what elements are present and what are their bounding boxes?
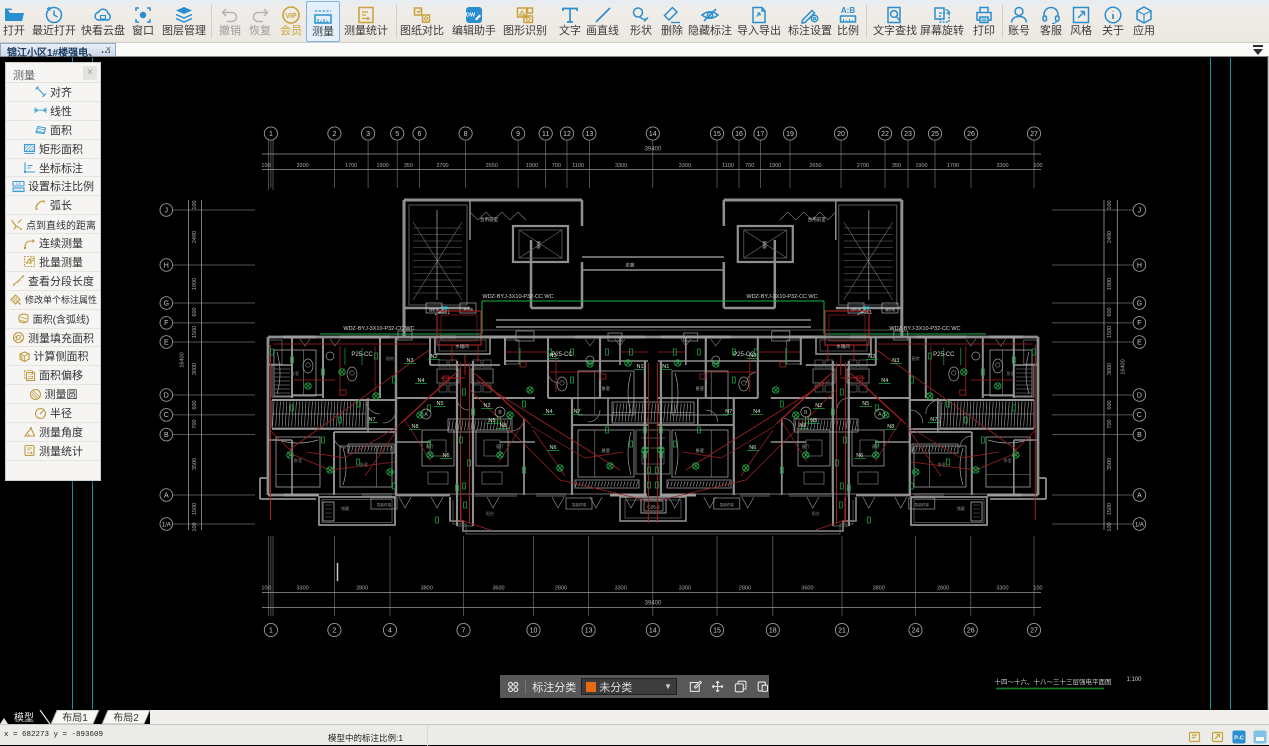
svg-text:1:100: 1:100: [1126, 677, 1142, 683]
svg-text:B: B: [498, 410, 502, 416]
svg-text:12: 12: [563, 131, 571, 138]
svg-text:B: B: [1137, 432, 1142, 439]
svg-text:N5: N5: [810, 418, 817, 424]
svg-text:N7: N7: [930, 417, 937, 423]
svg-text:J: J: [1138, 207, 1142, 214]
svg-text:700: 700: [552, 163, 561, 169]
svg-text:1500: 1500: [192, 326, 198, 338]
svg-text:16400: 16400: [1121, 359, 1127, 374]
svg-text:27: 27: [1030, 628, 1038, 635]
svg-text:3300: 3300: [679, 586, 691, 592]
svg-text:27: 27: [1030, 131, 1038, 138]
svg-text:厨房: 厨房: [912, 355, 920, 361]
svg-text:1700: 1700: [345, 163, 357, 169]
svg-text:N6: N6: [856, 453, 863, 459]
svg-text:N8: N8: [499, 423, 506, 429]
svg-text:F: F: [1137, 320, 1141, 327]
svg-text:智能终端: 智能终端: [572, 502, 586, 507]
svg-text:11: 11: [542, 131, 549, 138]
svg-text:2800: 2800: [555, 586, 567, 592]
svg-text:卧室: 卧室: [938, 461, 946, 467]
svg-text:储藏: 储藏: [341, 505, 349, 511]
svg-text:B: B: [804, 410, 808, 416]
svg-text:N2: N2: [430, 354, 437, 360]
svg-text:350: 350: [892, 163, 901, 169]
svg-text:10: 10: [530, 628, 538, 635]
svg-text:100: 100: [1033, 586, 1042, 592]
svg-text:1900: 1900: [192, 278, 198, 290]
svg-text:1900: 1900: [1107, 278, 1113, 290]
svg-text:26: 26: [967, 131, 975, 138]
svg-text:N3: N3: [892, 358, 899, 364]
svg-text:合用前室: 合用前室: [808, 216, 826, 223]
svg-text:8: 8: [464, 131, 468, 138]
svg-text:1500: 1500: [1107, 503, 1113, 515]
svg-text:N2: N2: [868, 354, 875, 360]
svg-text:9: 9: [516, 131, 520, 138]
svg-text:2800: 2800: [937, 586, 949, 592]
svg-text:N6: N6: [749, 445, 756, 451]
svg-text:P-C: P-C: [1234, 735, 1244, 741]
svg-text:卧室: 卧室: [602, 385, 610, 391]
svg-text:16: 16: [735, 131, 743, 138]
svg-text:600: 600: [1107, 400, 1113, 409]
svg-text:客厅: 客厅: [802, 443, 810, 449]
svg-text:15: 15: [713, 131, 721, 138]
svg-text:20: 20: [837, 131, 845, 138]
svg-text:N7: N7: [725, 409, 732, 415]
svg-text:3000: 3000: [192, 363, 198, 375]
svg-text:100: 100: [261, 586, 270, 592]
svg-text:N8: N8: [799, 423, 806, 429]
svg-text:25: 25: [931, 131, 939, 138]
svg-text:2650: 2650: [486, 163, 498, 169]
svg-text:水箱间: 水箱间: [455, 343, 469, 350]
svg-text:2700: 2700: [436, 163, 448, 169]
svg-text:3300: 3300: [996, 586, 1008, 592]
svg-text:18: 18: [769, 628, 777, 635]
svg-text:1500: 1500: [1107, 326, 1113, 338]
svg-text:N2: N2: [815, 403, 822, 409]
svg-text:100: 100: [192, 200, 198, 209]
svg-text:100: 100: [1033, 163, 1042, 169]
svg-text:智能终端: 智能终端: [915, 502, 929, 507]
svg-text:VIP: VIP: [285, 13, 297, 20]
svg-text:1900: 1900: [769, 163, 781, 169]
svg-text:3500: 3500: [192, 458, 198, 470]
svg-text:消防电: 消防电: [885, 307, 896, 312]
svg-text:3300: 3300: [296, 163, 308, 169]
svg-text:14: 14: [649, 628, 657, 635]
svg-text:1/A: 1/A: [1135, 522, 1144, 528]
svg-text:客厅: 客厅: [872, 443, 880, 449]
svg-text:1900: 1900: [376, 163, 388, 169]
svg-text:600: 600: [1107, 307, 1113, 316]
svg-text:6: 6: [418, 131, 422, 138]
svg-text:600: 600: [192, 307, 198, 316]
svg-text:2: 2: [332, 131, 336, 138]
svg-text:客厅: 客厅: [496, 443, 504, 449]
svg-text:3300: 3300: [615, 586, 627, 592]
svg-text:21: 21: [838, 628, 846, 635]
svg-text:智能终端: 智能终端: [720, 502, 734, 507]
svg-text:3300: 3300: [615, 163, 627, 169]
svg-text:100: 100: [1107, 522, 1113, 531]
svg-text:1900: 1900: [526, 163, 538, 169]
svg-text:P25-CC: P25-CC: [733, 352, 755, 358]
svg-text:合用前室: 合用前室: [480, 216, 498, 223]
svg-text:N4: N4: [417, 378, 424, 384]
svg-text:十四～十六、十八～三十三层强电平面图: 十四～十六、十八～三十三层强电平面图: [995, 677, 1112, 686]
svg-text:WDZ-BYJ-3X10-P32-CC WC: WDZ-BYJ-3X10-P32-CC WC: [746, 294, 817, 300]
svg-text:N7: N7: [573, 409, 580, 415]
svg-text:卧室: 卧室: [1004, 457, 1012, 463]
svg-text:厨房: 厨房: [386, 355, 394, 361]
svg-text:100: 100: [1107, 200, 1113, 209]
svg-text:A: A: [424, 412, 428, 418]
svg-text:A:B: A:B: [841, 6, 855, 15]
svg-text:14: 14: [649, 131, 657, 138]
svg-text:G: G: [164, 300, 169, 307]
svg-text:B: B: [164, 432, 169, 439]
svg-text:3300: 3300: [679, 163, 691, 169]
svg-text:600: 600: [192, 400, 198, 409]
svg-text:2490: 2490: [1107, 231, 1113, 243]
svg-text:A: A: [1137, 492, 1142, 499]
svg-text:电梯: 电梯: [535, 241, 541, 249]
svg-text:N8: N8: [411, 424, 418, 430]
svg-text:3300: 3300: [296, 586, 308, 592]
svg-text:700: 700: [1107, 419, 1113, 428]
svg-text:2490: 2490: [192, 231, 198, 243]
svg-text:布局1: 布局1: [62, 712, 88, 724]
svg-text:H: H: [164, 262, 169, 269]
svg-text:N8: N8: [887, 424, 894, 430]
svg-text:100: 100: [192, 522, 198, 531]
svg-text:700: 700: [745, 163, 754, 169]
svg-text:3500: 3500: [1107, 458, 1113, 470]
svg-text:E: E: [164, 339, 169, 346]
svg-text:卧室: 卧室: [1007, 370, 1015, 376]
svg-text:阳台: 阳台: [486, 510, 494, 516]
svg-text:16400: 16400: [180, 352, 186, 367]
svg-text:A:B: A:B: [16, 182, 22, 186]
svg-text:1: 1: [269, 628, 273, 635]
svg-text:23: 23: [904, 131, 912, 138]
svg-text:1700: 1700: [947, 163, 959, 169]
svg-text:5: 5: [395, 131, 399, 138]
svg-text:3600: 3600: [492, 586, 504, 592]
svg-text:G: G: [1137, 300, 1142, 307]
svg-text:N6: N6: [442, 453, 449, 459]
svg-text:1100: 1100: [722, 163, 734, 169]
svg-text:3600: 3600: [801, 586, 813, 592]
svg-text:26: 26: [967, 628, 975, 635]
svg-text:3800: 3800: [873, 586, 885, 592]
svg-text:D: D: [1137, 392, 1142, 399]
svg-text:卧室: 卧室: [696, 385, 704, 391]
svg-text:350: 350: [404, 163, 413, 169]
svg-text:17: 17: [757, 131, 765, 138]
svg-text:15: 15: [713, 628, 721, 635]
svg-text:客厅: 客厅: [426, 443, 434, 449]
svg-text:N4: N4: [753, 409, 760, 415]
svg-text:2650: 2650: [809, 163, 821, 169]
svg-text:13: 13: [586, 131, 594, 138]
svg-text:N5: N5: [436, 401, 443, 407]
svg-text:3300: 3300: [996, 163, 1008, 169]
svg-text:39400: 39400: [645, 601, 662, 607]
svg-text:2800: 2800: [356, 586, 368, 592]
svg-text:1100: 1100: [572, 163, 584, 169]
svg-text:C: C: [1137, 412, 1142, 419]
svg-text:卧室: 卧室: [696, 447, 704, 453]
svg-text:DW: DW: [466, 13, 476, 19]
svg-text:F: F: [164, 320, 168, 327]
svg-text:走廊: 走廊: [626, 262, 635, 269]
svg-text:N1: N1: [662, 364, 669, 370]
svg-text:N1: N1: [636, 364, 643, 370]
svg-text:储藏: 储藏: [957, 505, 965, 511]
svg-text:2: 2: [332, 628, 336, 635]
svg-text:7: 7: [462, 628, 466, 635]
svg-text:阳台: 阳台: [812, 510, 820, 516]
svg-text:N3: N3: [406, 358, 413, 364]
svg-text:4: 4: [388, 628, 392, 635]
svg-text:C25-2: C25-2: [647, 505, 660, 510]
svg-text:N4: N4: [545, 409, 552, 415]
svg-text:J: J: [165, 207, 169, 214]
svg-text:N6: N6: [549, 445, 556, 451]
svg-text:1/A: 1/A: [162, 522, 171, 528]
svg-text:C: C: [164, 412, 169, 419]
svg-text:N4: N4: [881, 378, 888, 384]
svg-text:1900: 1900: [915, 163, 927, 169]
svg-text:布局2: 布局2: [113, 712, 139, 724]
svg-text:P25-CC: P25-CC: [551, 352, 573, 358]
svg-text:1500: 1500: [192, 503, 198, 515]
svg-text:N2: N2: [483, 403, 490, 409]
svg-text:模型: 模型: [14, 711, 34, 724]
svg-text:H: H: [1137, 262, 1142, 269]
svg-text:24: 24: [912, 628, 920, 635]
svg-text:13: 13: [585, 628, 593, 635]
svg-text:N7: N7: [368, 417, 375, 423]
svg-text:19: 19: [786, 131, 794, 138]
svg-text:700: 700: [192, 419, 198, 428]
svg-text:电梯: 电梯: [761, 241, 767, 249]
svg-text:D: D: [164, 392, 169, 399]
svg-text:智能终端: 智能终端: [377, 502, 391, 507]
svg-text:E: E: [1137, 339, 1142, 346]
svg-text:A: A: [164, 492, 169, 499]
svg-text:3: 3: [366, 131, 370, 138]
svg-text:N5: N5: [488, 418, 495, 424]
svg-text:1: 1: [269, 131, 273, 138]
svg-text:3000: 3000: [1107, 363, 1113, 375]
svg-text:A: A: [878, 412, 882, 418]
svg-text:2800: 2800: [739, 586, 751, 592]
svg-text:100: 100: [261, 163, 270, 169]
svg-text:22: 22: [881, 131, 889, 138]
svg-text:N5: N5: [862, 401, 869, 407]
svg-text:卧室: 卧室: [291, 370, 299, 376]
svg-text:WDZ-BYJ-3X10-P32-CC WC: WDZ-BYJ-3X10-P32-CC WC: [482, 294, 553, 300]
svg-text:39400: 39400: [645, 147, 662, 153]
svg-text:2700: 2700: [857, 163, 869, 169]
svg-text:卧室: 卧室: [602, 447, 610, 453]
svg-text:水箱间: 水箱间: [836, 343, 850, 350]
svg-text:卧室: 卧室: [360, 461, 368, 467]
svg-text:卧室: 卧室: [294, 457, 302, 463]
svg-text:3800: 3800: [421, 586, 433, 592]
